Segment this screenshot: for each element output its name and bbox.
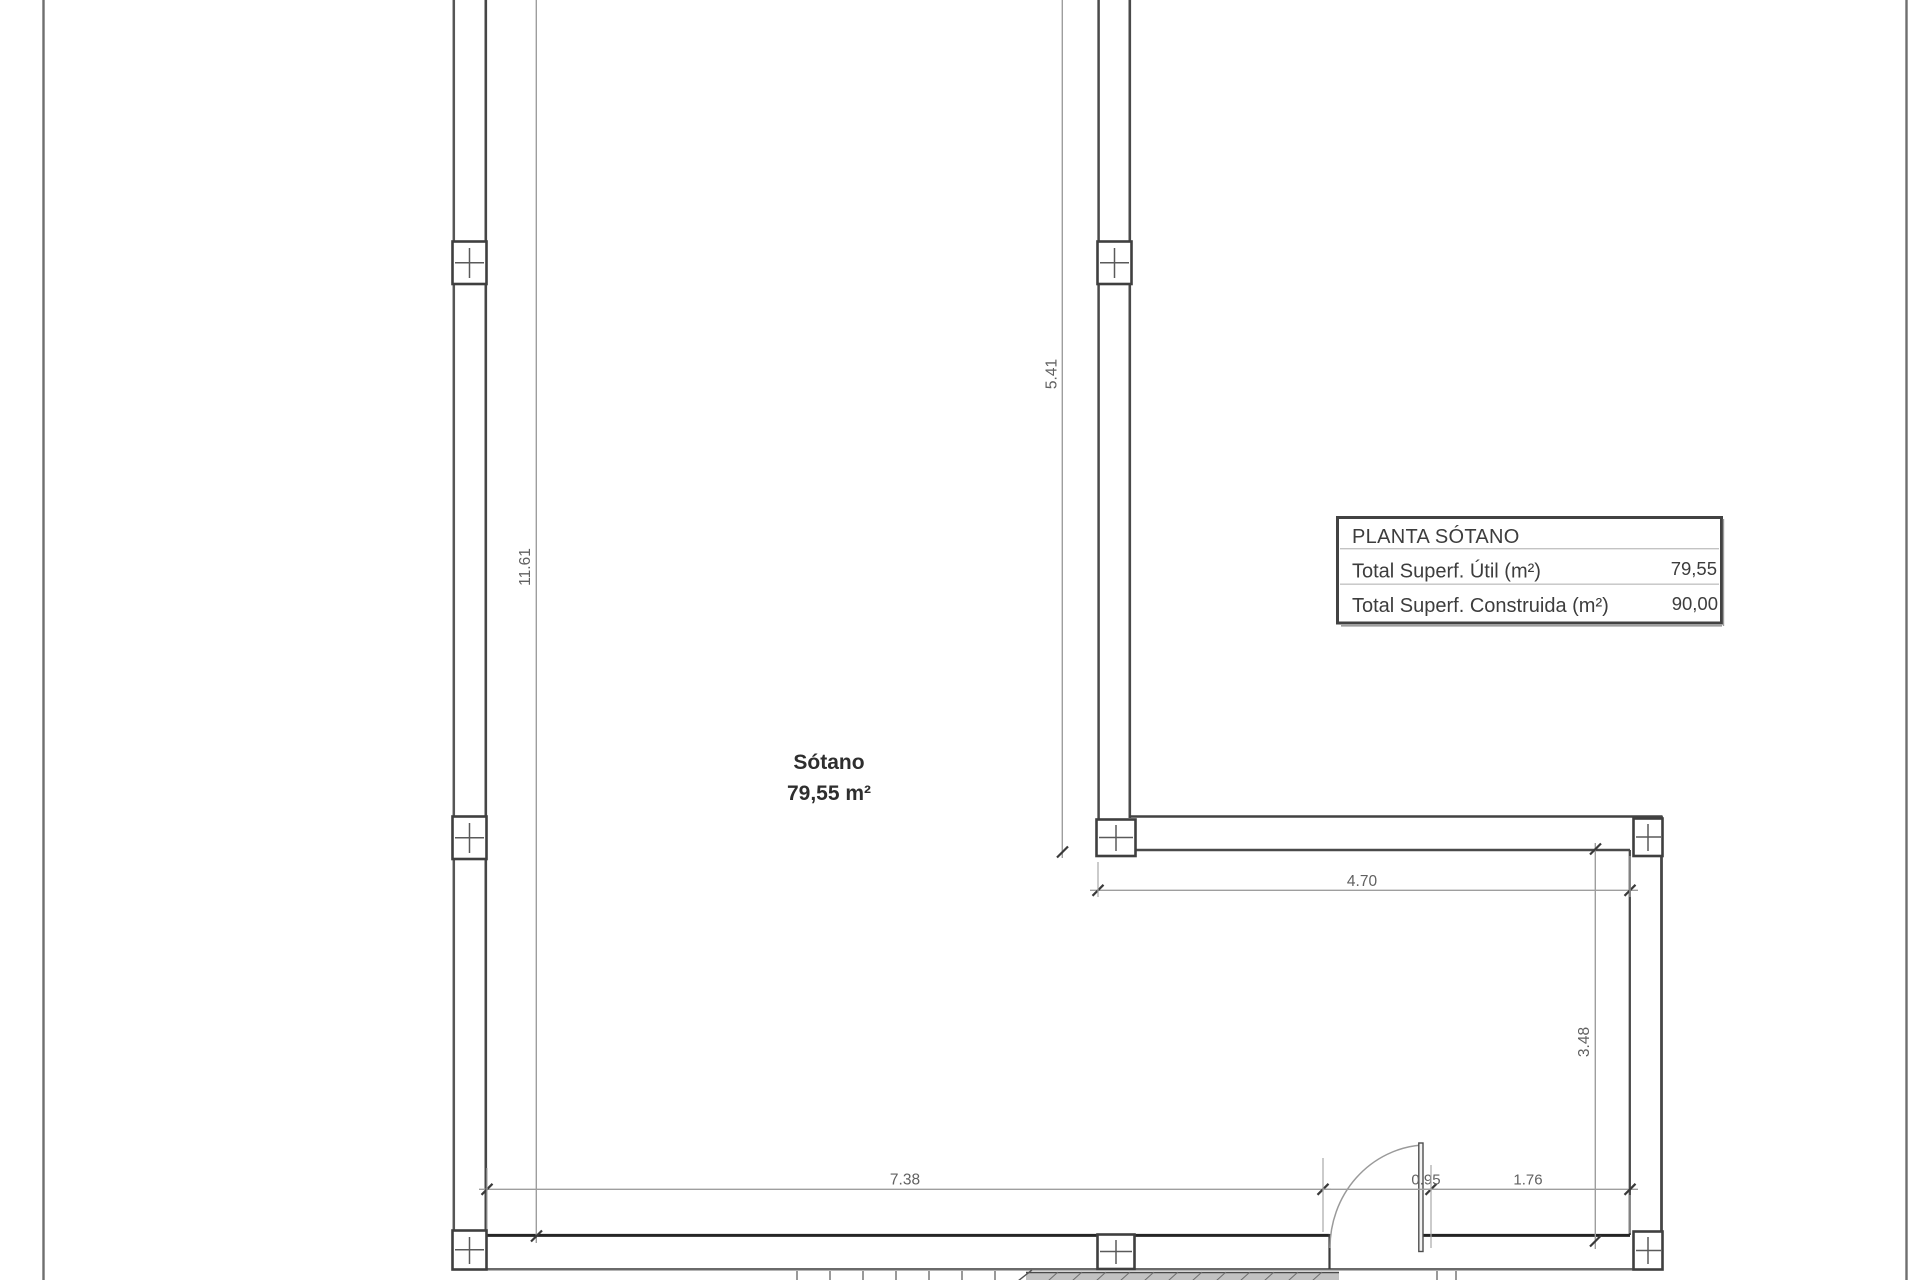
- svg-text:79,55 m²: 79,55 m²: [787, 782, 871, 805]
- svg-text:0.95: 0.95: [1411, 1172, 1440, 1189]
- svg-text:5.41: 5.41: [1044, 359, 1061, 389]
- svg-text:7.38: 7.38: [890, 1172, 920, 1189]
- svg-text:11.61: 11.61: [517, 548, 534, 586]
- svg-text:79,55: 79,55: [1671, 558, 1717, 579]
- svg-text:3.48: 3.48: [1576, 1027, 1593, 1057]
- svg-text:4.70: 4.70: [1347, 873, 1378, 890]
- svg-text:Total Superf. Construida (m²): Total Superf. Construida (m²): [1352, 595, 1609, 617]
- svg-text:Total Superf. Útil (m²): Total Superf. Útil (m²): [1352, 560, 1541, 583]
- svg-text:1.76: 1.76: [1513, 1172, 1542, 1189]
- svg-text:PLANTA SÓTANO: PLANTA SÓTANO: [1352, 525, 1520, 548]
- svg-text:90,00: 90,00: [1672, 593, 1718, 614]
- svg-text:Sótano: Sótano: [793, 751, 864, 774]
